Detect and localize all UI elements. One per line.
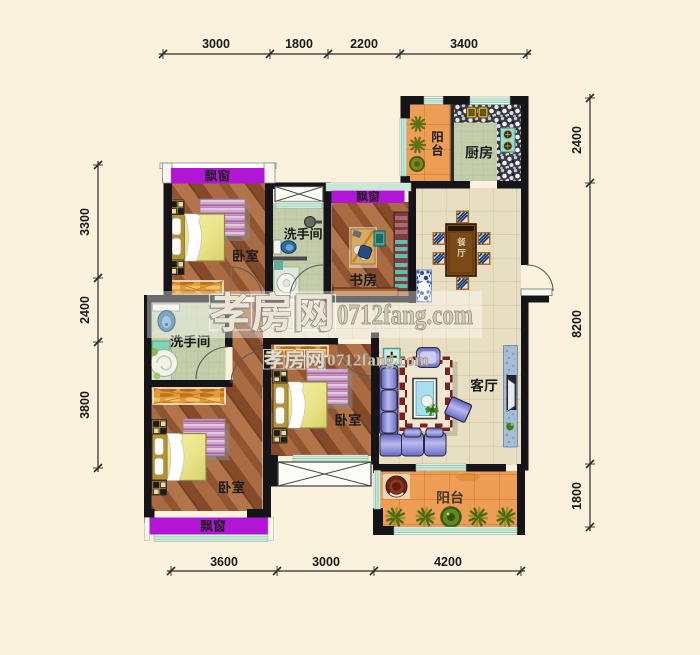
svg-text:0712fang.com: 0712fang.com [327,351,429,370]
svg-text:8200: 8200 [570,310,584,338]
svg-text:3600: 3600 [210,555,238,569]
svg-text:3000: 3000 [312,555,340,569]
svg-text:3000: 3000 [202,37,230,51]
svg-text:1800: 1800 [285,37,313,51]
svg-text:2400: 2400 [78,296,92,324]
svg-text:1800: 1800 [570,482,584,510]
svg-text:3400: 3400 [450,37,478,51]
svg-text:2200: 2200 [350,37,378,51]
svg-text:4200: 4200 [434,555,462,569]
svg-text:0712fang.com: 0712fang.com [337,300,473,331]
svg-text:3300: 3300 [78,208,92,236]
svg-text:2400: 2400 [570,126,584,154]
svg-text:3800: 3800 [78,391,92,419]
